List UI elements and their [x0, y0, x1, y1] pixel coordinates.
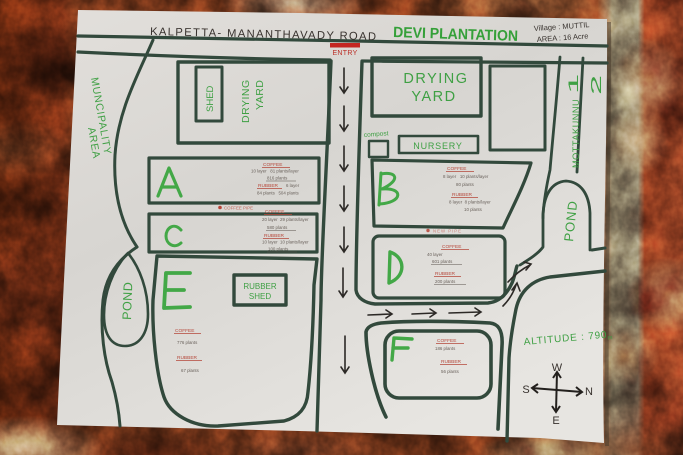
svg-text:NEW PIPE: NEW PIPE — [433, 229, 462, 234]
svg-text:200 plants: 200 plants — [435, 279, 456, 284]
svg-text:DRYING: DRYING — [240, 79, 252, 123]
svg-text:RUBBER: RUBBER — [243, 282, 277, 291]
svg-text:RUBBER: RUBBER — [264, 233, 285, 239]
svg-text:SHED: SHED — [249, 292, 271, 301]
svg-text:10 layer 10 plants/layer: 10 layer 10 plants/layer — [262, 240, 309, 245]
svg-text:10 plants: 10 plants — [464, 207, 483, 212]
svg-text:RUBBER: RUBBER — [441, 359, 462, 365]
svg-text:6 layer: 6 layer — [286, 183, 300, 188]
svg-text:MOTTAKUNNU: MOTTAKUNNU — [571, 99, 581, 168]
svg-text:POND: POND — [120, 282, 135, 321]
svg-text:80 plants: 80 plants — [456, 182, 475, 187]
svg-text:YARD: YARD — [411, 89, 456, 105]
svg-text:580 plants: 580 plants — [267, 225, 288, 230]
svg-text:RUBBER: RUBBER — [177, 355, 198, 361]
svg-text:84 plants 504 plants: 84 plants 504 plants — [257, 191, 300, 196]
svg-text:COFFEE PIPE: COFFEE PIPE — [224, 206, 253, 211]
svg-text:RUBBER: RUBBER — [258, 183, 279, 189]
svg-text:ENTRY: ENTRY — [332, 50, 357, 57]
svg-text:186 plants: 186 plants — [435, 346, 456, 351]
svg-text:8 layer 8 plants/layer: 8 layer 8 plants/layer — [449, 200, 491, 205]
svg-text:COFFEE: COFFEE — [263, 162, 282, 168]
svg-text:NURSERY: NURSERY — [413, 141, 462, 151]
svg-text:100 plants: 100 plants — [268, 247, 289, 252]
svg-text:8 layer 10 plants/layer: 8 layer 10 plants/layer — [443, 174, 489, 179]
svg-text:COFFEE: COFFEE — [265, 209, 284, 215]
svg-text:E: E — [552, 415, 559, 427]
svg-text:1: 1 — [565, 74, 581, 94]
svg-text:W: W — [552, 362, 563, 374]
svg-text:776 plants: 776 plants — [177, 340, 198, 345]
svg-text:COFFEE: COFFEE — [175, 328, 194, 334]
svg-text:S: S — [522, 384, 529, 396]
svg-text:816 plants: 816 plants — [267, 176, 288, 181]
svg-text:COFFEE: COFFEE — [447, 166, 466, 172]
svg-text:10 layer 81 plants/layer: 10 layer 81 plants/layer — [251, 169, 299, 174]
svg-text:601 plants: 601 plants — [432, 259, 453, 264]
svg-text:40 layer: 40 layer — [427, 252, 443, 257]
svg-text:2: 2 — [587, 75, 604, 95]
svg-text:N: N — [585, 386, 593, 398]
svg-text:56 plants: 56 plants — [441, 369, 460, 374]
svg-text:SHED: SHED — [205, 85, 216, 112]
svg-text:COFFEE: COFFEE — [437, 338, 456, 344]
svg-text:RUBBER: RUBBER — [435, 271, 456, 277]
svg-text:COFFEE: COFFEE — [442, 244, 461, 250]
svg-text:RUBBER: RUBBER — [452, 192, 473, 198]
svg-text:DRYING: DRYING — [403, 71, 468, 87]
svg-text:67 plants: 67 plants — [181, 368, 200, 373]
svg-text:20 layer 29 plants/layer: 20 layer 29 plants/layer — [262, 217, 309, 222]
svg-text:YARD: YARD — [254, 80, 266, 110]
